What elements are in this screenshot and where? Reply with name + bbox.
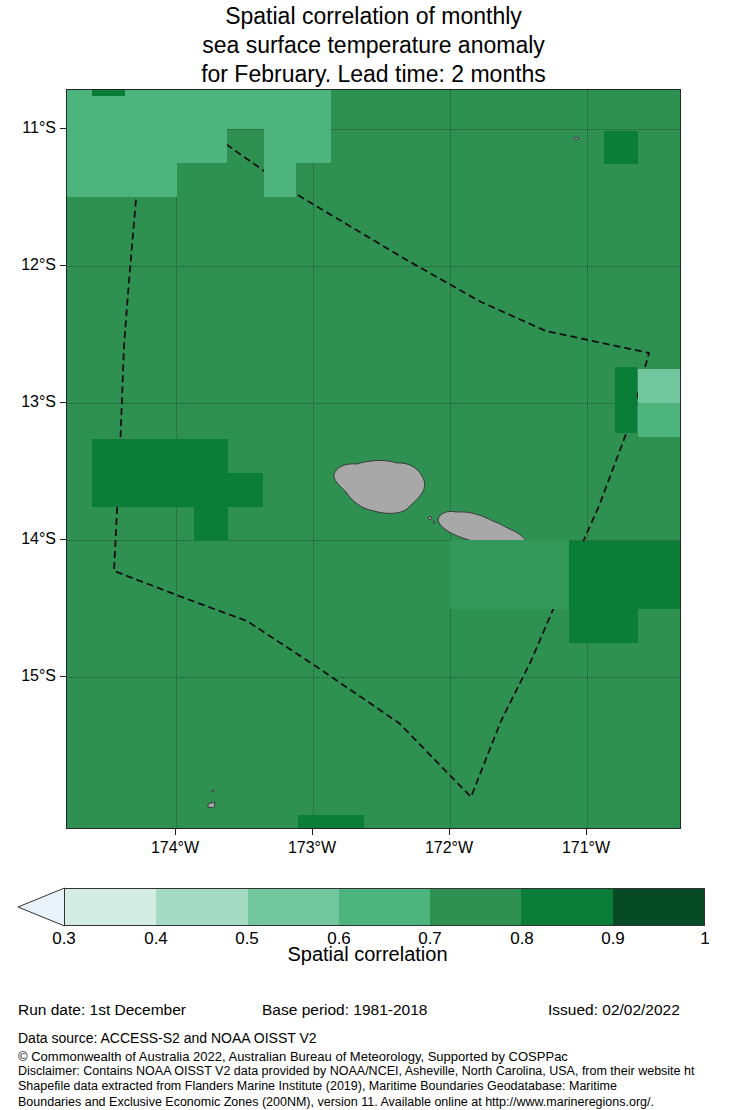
y-tick-label: 13°S: [0, 391, 56, 413]
colorbar-bar: [64, 888, 705, 926]
correlation-cell: [264, 129, 296, 197]
islet-southwest: [208, 802, 215, 808]
correlation-cell: [194, 507, 228, 541]
figure: Spatial correlation of monthly sea surfa…: [0, 0, 735, 1110]
y-tick-mark: [60, 539, 66, 540]
chart-title-line-3: for February. Lead time: 2 months: [12, 60, 735, 89]
x-tick-mark: [586, 829, 587, 835]
islet-north: [574, 137, 579, 140]
colorbar-segment: [521, 889, 612, 925]
colorbar-segment: [65, 889, 156, 925]
y-tick-label: 15°S: [0, 665, 56, 687]
map-plot: [66, 89, 681, 829]
correlation-cell: [638, 369, 681, 403]
correlation-cell: [227, 90, 331, 129]
x-tick-mark: [449, 829, 450, 835]
issued-text: Issued: 02/02/2022: [548, 1001, 680, 1019]
correlation-cell: [638, 403, 681, 437]
correlation-cell: [228, 473, 263, 507]
disclaimer-line-1: Disclaimer: Contains NOAA OISST V2 data …: [18, 1064, 735, 1079]
correlation-cell: [298, 815, 364, 829]
y-tick-label: 14°S: [0, 528, 56, 550]
correlation-cell: [450, 540, 569, 609]
copyright-text: © Commonwealth of Australia 2022, Austra…: [18, 1049, 568, 1064]
data-source-text: Data source: ACCESS-S2 and NOAA OISST V2: [18, 1030, 317, 1046]
correlation-cell: [67, 163, 177, 197]
correlation-cell: [569, 541, 681, 609]
correlation-cell: [569, 609, 638, 643]
y-tick-label: 12°S: [0, 254, 56, 276]
run-date-text: Run date: 1st December: [18, 1001, 186, 1019]
x-tick-label: 174°W: [130, 837, 220, 859]
correlation-cell: [92, 439, 228, 507]
correlation-cell: [604, 131, 638, 164]
y-tick-mark: [60, 128, 66, 129]
colorbar-segment: [613, 889, 704, 925]
correlation-cell: [615, 367, 637, 433]
x-tick-mark: [175, 829, 176, 835]
island-apolima: [428, 516, 431, 519]
colorbar-segment: [248, 889, 339, 925]
colorbar-segment: [156, 889, 247, 925]
colorbar-segment: [430, 889, 521, 925]
islet-southwest-speck: [212, 790, 214, 792]
x-tick-label: 172°W: [404, 837, 494, 859]
colorbar-segment: [339, 889, 430, 925]
y-tick-mark: [60, 676, 66, 677]
correlation-cell: [92, 90, 125, 96]
disclaimer-line-2: Shapefile data extracted from Flanders M…: [18, 1079, 735, 1094]
base-period-text: Base period: 1981-2018: [262, 1001, 427, 1019]
y-tick-label: 11°S: [0, 117, 56, 139]
chart-title-line-1: Spatial correlation of monthly: [12, 2, 735, 31]
correlation-cell: [296, 129, 331, 163]
y-tick-mark: [60, 402, 66, 403]
y-tick-mark: [60, 265, 66, 266]
colorbar-label: Spatial correlation: [0, 943, 735, 966]
x-tick-label: 171°W: [541, 837, 631, 859]
disclaimer-line-3: Boundaries and Exclusive Economic Zones …: [18, 1095, 735, 1110]
island-manono: [433, 521, 435, 523]
x-tick-label: 173°W: [267, 837, 357, 859]
chart-title: Spatial correlation of monthly sea surfa…: [12, 2, 735, 89]
disclaimer-text: Disclaimer: Contains NOAA OISST V2 data …: [18, 1064, 735, 1110]
colorbar-arrow: [17, 887, 65, 927]
x-tick-mark: [312, 829, 313, 835]
island-savaii: [334, 460, 425, 513]
chart-title-line-2: sea surface temperature anomaly: [12, 31, 735, 60]
correlation-cell: [67, 90, 227, 163]
